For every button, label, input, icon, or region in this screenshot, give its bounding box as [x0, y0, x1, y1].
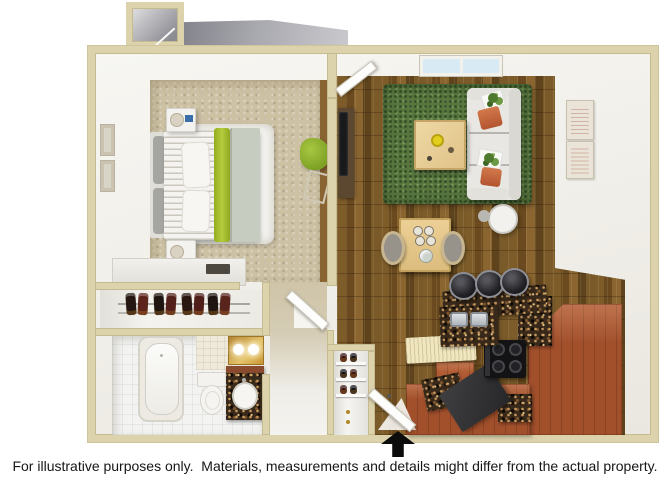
table-decor: [427, 156, 432, 161]
floorplan-image: For illustrative purposes only. Material…: [0, 0, 670, 480]
shoe: [207, 293, 218, 315]
toilet-seat: [205, 391, 220, 410]
closet-shelf: [336, 362, 366, 365]
window: [420, 56, 502, 76]
bed-sage-blanket: [230, 128, 260, 242]
wall-divider-upper: [327, 53, 337, 98]
shoe: [340, 353, 347, 362]
closet-hinge: [346, 410, 350, 414]
stove: [484, 340, 526, 378]
vanity-cabinet: [226, 366, 264, 420]
closet-hinge: [346, 420, 350, 424]
shoe: [219, 293, 231, 316]
vanity-light: [233, 344, 244, 355]
toilet-bowl: [200, 385, 224, 415]
wall-closet-bathroom: [95, 328, 270, 336]
vanity-back-edge: [226, 366, 264, 373]
dining-chair: [441, 231, 465, 265]
adjacent-roof: [184, 20, 348, 46]
yellow-bowl: [431, 134, 444, 147]
stove-control-strip: [485, 342, 490, 376]
orange-pillow: [480, 167, 502, 188]
dresser-tray: [206, 264, 230, 274]
sink-basin: [470, 312, 488, 327]
shoe: [125, 293, 137, 316]
shoe: [350, 369, 357, 378]
shoe: [350, 353, 357, 362]
bed-white-pillow: [181, 141, 211, 188]
sink-counter: [439, 305, 498, 347]
table-decor: [448, 147, 454, 153]
wall-art-frame: [100, 160, 115, 192]
shoe: [193, 293, 204, 315]
plate: [426, 236, 436, 246]
vanity-sink: [232, 382, 258, 410]
shoe: [181, 293, 193, 316]
wall-entry-closet-top: [327, 344, 375, 351]
exterior-closet: [126, 2, 184, 48]
sink-basin: [450, 312, 468, 327]
sofa-backrest: [509, 88, 521, 200]
shoe: [153, 293, 164, 315]
vanity-faucet: [242, 378, 246, 382]
shoe: [350, 385, 357, 394]
lamp: [170, 113, 184, 127]
bed-white-pillow: [181, 190, 210, 233]
wall-bedroom-closet: [95, 282, 240, 290]
wall-closet-end: [262, 282, 270, 336]
bar-stool: [449, 272, 478, 300]
accent-chair: [300, 138, 330, 170]
vase: [419, 249, 433, 263]
bathtub-drain: [160, 354, 163, 357]
side-table: [488, 204, 518, 234]
book: [185, 115, 193, 122]
disclaimer-text: For illustrative purposes only. Material…: [0, 456, 670, 476]
sofa-armrest: [467, 188, 509, 200]
vanity-mirror: [228, 336, 264, 365]
wall-divider-middle: [327, 98, 337, 286]
lamp: [170, 245, 184, 259]
plant: [488, 93, 498, 103]
window-mullion: [460, 59, 463, 73]
bathtub: [138, 336, 184, 422]
plant: [484, 153, 494, 163]
shoe: [340, 385, 347, 394]
plate: [415, 236, 425, 246]
sofa-seat-seam: [469, 132, 509, 134]
burner: [492, 360, 505, 373]
shoe: [340, 369, 347, 378]
plate: [413, 226, 423, 236]
entry-door-knob: [387, 394, 391, 398]
burner: [509, 343, 522, 356]
closet-shelf: [336, 378, 366, 381]
bar-stool: [500, 268, 529, 296]
dining-chair: [381, 231, 405, 265]
bed-lime-throw: [214, 128, 230, 242]
plate: [424, 226, 434, 236]
shoe: [165, 293, 177, 316]
wall-art-frame: [100, 124, 115, 156]
tv-screen: [339, 112, 348, 176]
nightstand: [166, 108, 196, 132]
vanity-light: [248, 344, 259, 355]
wall-art-frame: [566, 141, 594, 179]
wall-bathroom-hall: [262, 374, 270, 435]
burner: [509, 360, 522, 373]
exterior-closet-door-line: [155, 28, 176, 47]
stool-small: [478, 210, 490, 222]
closet-shelf: [336, 394, 366, 397]
shoe: [137, 293, 148, 315]
wall-art-frame: [566, 100, 594, 140]
